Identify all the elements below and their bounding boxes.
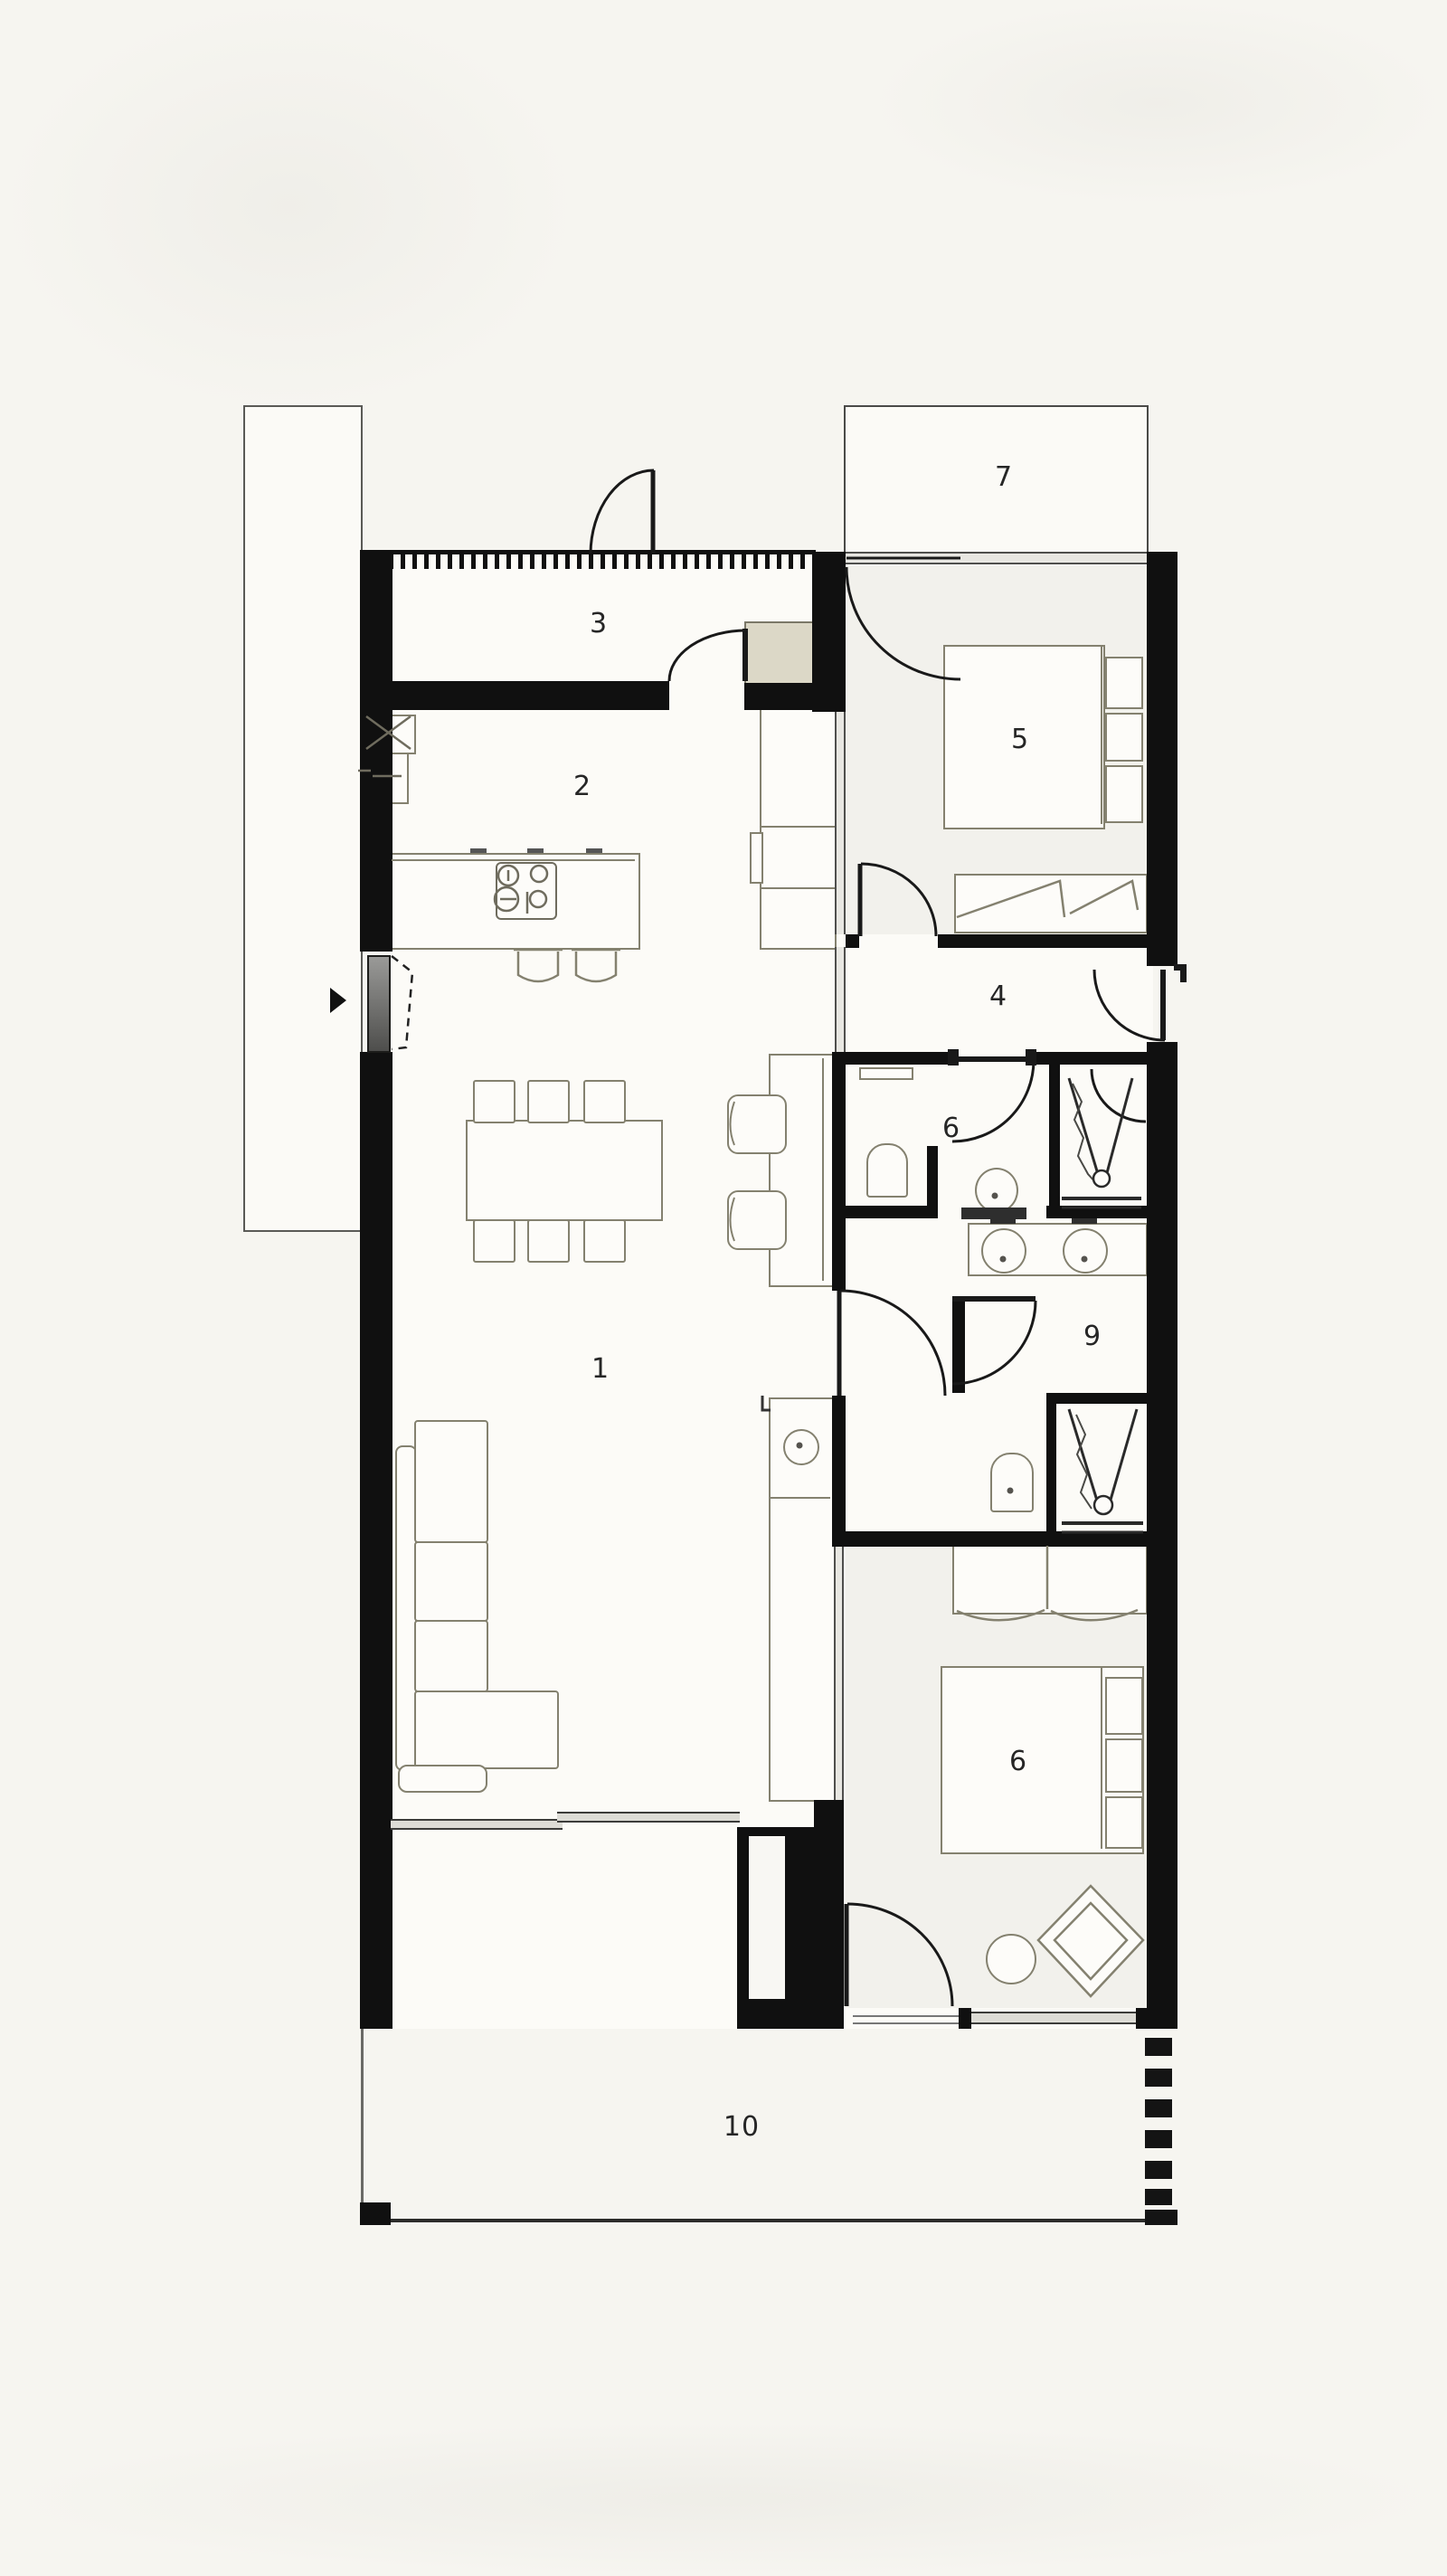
entry-door-top: [591, 470, 654, 554]
label-living: 1: [573, 1353, 628, 1385]
bar-stools: [514, 950, 620, 981]
door-hall3: [669, 629, 746, 681]
label-entry-hall: 3: [572, 608, 626, 639]
tall-unit-marks: [358, 716, 411, 776]
door-bed5: [860, 864, 936, 936]
label-bedroom-bottom: 6: [991, 1746, 1045, 1777]
floor-plan-canvas: 7 3 2 5 4 6 9 1 6 10: [0, 0, 1447, 2576]
label-bathroom: 6: [924, 1113, 979, 1144]
diamond-chair: [1038, 1886, 1143, 1996]
label-hallway: 4: [971, 980, 1026, 1012]
door-dressing: [952, 1299, 1036, 1384]
label-terrace-bottom: 10: [714, 2111, 769, 2143]
label-kitchen: 2: [555, 771, 610, 802]
left-entry-swing: [330, 956, 412, 1049]
armchair-backs: [731, 1102, 735, 1241]
shower9-symbol: [1062, 1409, 1143, 1532]
door-entry-right: [1094, 964, 1187, 1040]
cooktop-burners: [495, 866, 547, 914]
entry-arrow-icon: [330, 988, 346, 1013]
plan-linework: [0, 0, 1447, 2576]
label-bedroom-top: 5: [993, 724, 1047, 755]
closet-hook: [762, 1396, 771, 1410]
bench-lids: [957, 881, 1138, 917]
dresser-curves: [957, 1546, 1138, 1620]
door-bed5-terrace: [846, 558, 960, 679]
door-living-dressing: [839, 1291, 945, 1396]
door-shower6: [1092, 1069, 1146, 1122]
label-dressing: 9: [1065, 1321, 1120, 1352]
label-terrace-top: 7: [977, 461, 1031, 493]
door-bed6-terrace: [846, 1904, 952, 2006]
